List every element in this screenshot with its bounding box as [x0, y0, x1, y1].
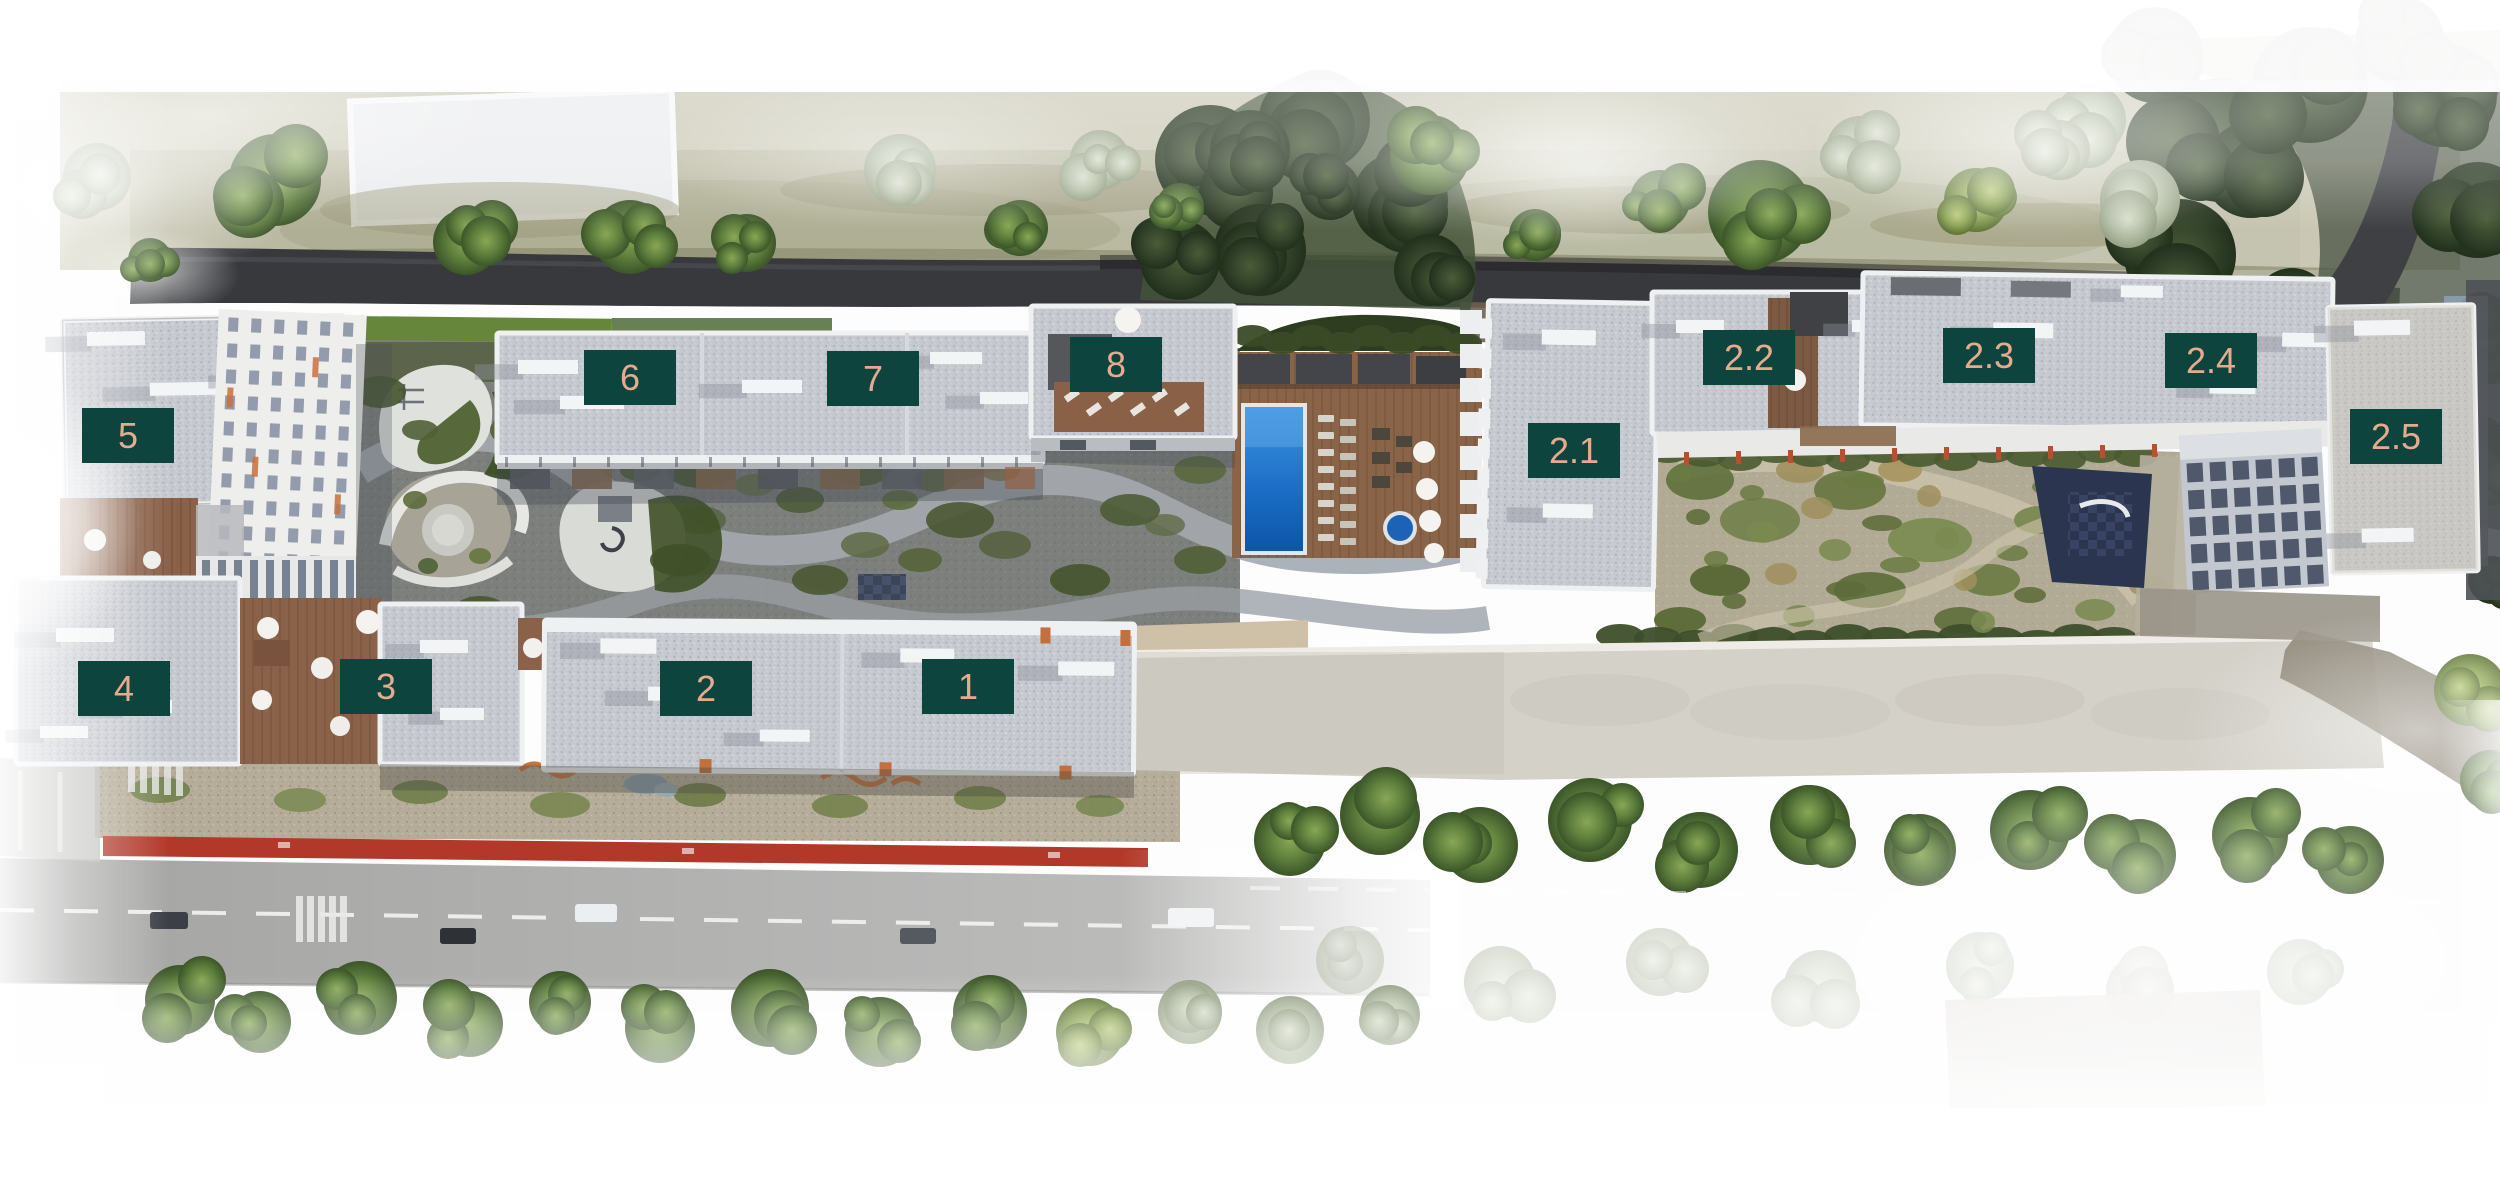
svg-text:8: 8 — [1106, 344, 1126, 385]
svg-text:6: 6 — [620, 357, 640, 398]
svg-text:3: 3 — [376, 666, 396, 707]
svg-text:1: 1 — [958, 666, 978, 707]
svg-text:2.3: 2.3 — [1964, 335, 2014, 376]
svg-text:2.2: 2.2 — [1724, 337, 1774, 378]
svg-text:5: 5 — [118, 415, 138, 456]
svg-text:2.5: 2.5 — [2371, 416, 2421, 457]
svg-text:4: 4 — [114, 668, 134, 709]
svg-text:2.4: 2.4 — [2186, 340, 2236, 381]
svg-text:7: 7 — [863, 358, 883, 399]
svg-text:2: 2 — [696, 668, 716, 709]
svg-text:2.1: 2.1 — [1549, 430, 1599, 471]
